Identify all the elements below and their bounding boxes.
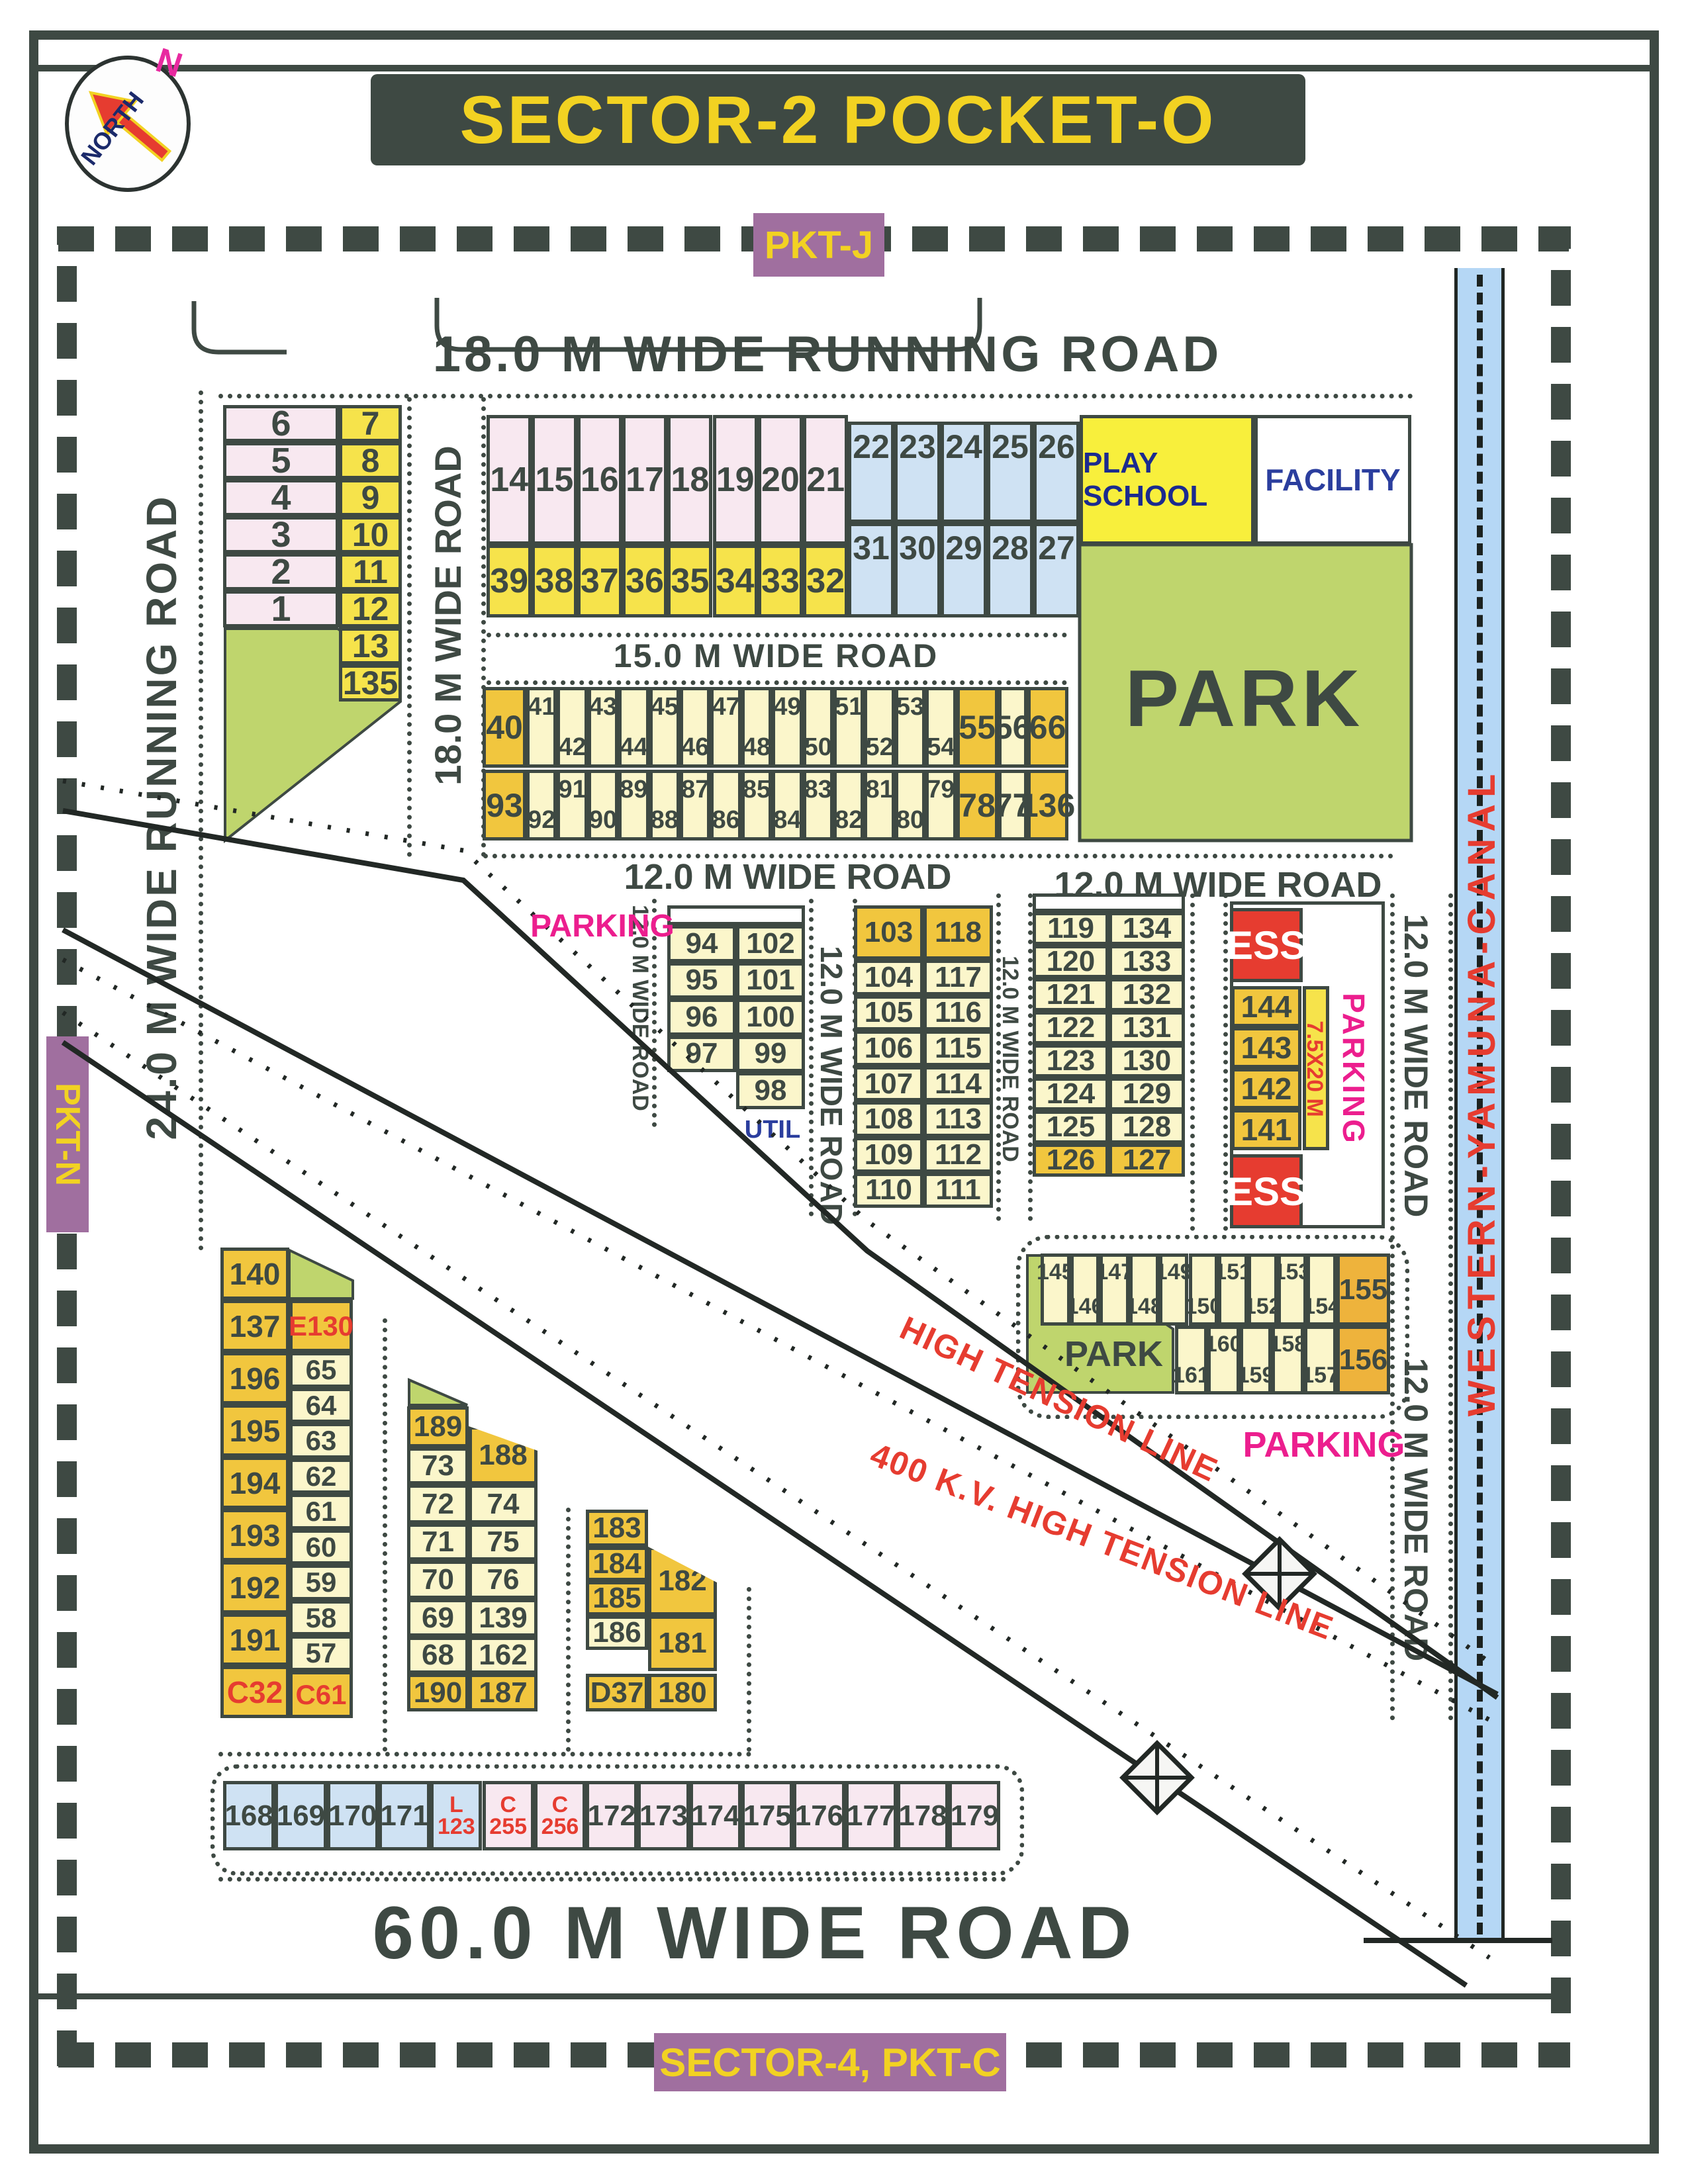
- plot-29: 29: [941, 523, 987, 617]
- plot-131: 131: [1109, 1011, 1185, 1044]
- plot-65: 65: [289, 1352, 353, 1388]
- plot-88: 88: [649, 770, 680, 841]
- plot-156: 156: [1336, 1326, 1390, 1394]
- plot-132: 132: [1109, 978, 1185, 1011]
- plot-168: 168: [223, 1781, 275, 1850]
- plot-143: 143: [1231, 1027, 1301, 1068]
- plot-41: 41: [526, 687, 557, 768]
- sector-plan-page: SECTOR-2 POCKET-O NORTH N PKT-J PKT-N SE…: [0, 0, 1688, 2184]
- plot-139: 139: [469, 1599, 538, 1637]
- plot-23: 23: [894, 422, 941, 523]
- plot-72: 72: [407, 1484, 469, 1524]
- plot-82: 82: [833, 770, 864, 841]
- plot-5: 5: [223, 442, 339, 479]
- plot-85: 85: [741, 770, 772, 841]
- tag-sector4: SECTOR-4, PKT-C: [654, 2033, 1006, 2091]
- plot-43: 43: [588, 687, 618, 768]
- plot-37: 37: [577, 545, 622, 617]
- area-facility: FACILITY: [1254, 415, 1411, 545]
- ess-bottom: ESS: [1230, 1154, 1303, 1228]
- plot-106: 106: [854, 1030, 923, 1066]
- plot-45: 45: [649, 687, 680, 768]
- plot-label: L: [449, 1794, 463, 1815]
- plot-36: 36: [622, 545, 667, 617]
- plot-115: 115: [923, 1030, 993, 1066]
- plot-188: 188: [469, 1426, 538, 1484]
- plot-180: 180: [648, 1674, 717, 1711]
- plot-28: 28: [987, 523, 1033, 617]
- plot-101: 101: [736, 962, 805, 999]
- plot-35: 35: [667, 545, 712, 617]
- plot-194: 194: [220, 1457, 289, 1509]
- plot-128: 128: [1109, 1111, 1185, 1144]
- plot-d37: D37: [586, 1674, 648, 1711]
- ess-dim-label: 7.5X20 M: [1305, 986, 1327, 1152]
- plot-137: 137: [220, 1300, 289, 1352]
- plot-107: 107: [854, 1066, 923, 1102]
- plot-177: 177: [845, 1781, 897, 1850]
- plot-191: 191: [220, 1614, 289, 1666]
- plot-130: 130: [1109, 1044, 1185, 1077]
- plot-195: 195: [220, 1404, 289, 1457]
- plot-38: 38: [532, 545, 577, 617]
- plot-189: 189: [407, 1406, 469, 1447]
- plot-54: 54: [925, 687, 956, 768]
- plot-3: 3: [223, 516, 339, 553]
- plot-c255: C255: [483, 1781, 534, 1850]
- plot-102: 102: [736, 925, 805, 962]
- plot-32: 32: [803, 545, 848, 617]
- plot-144: 144: [1231, 986, 1301, 1027]
- plot-183: 183: [586, 1510, 648, 1547]
- plot-103: 103: [854, 905, 923, 960]
- plot-129: 129: [1109, 1077, 1185, 1111]
- plot-154: 154: [1307, 1253, 1336, 1326]
- plot-42: 42: [557, 687, 587, 768]
- plot-185: 185: [586, 1581, 648, 1615]
- plot-74: 74: [469, 1484, 538, 1524]
- plot-161: 161: [1175, 1326, 1207, 1394]
- plot-53: 53: [895, 687, 925, 768]
- plot-110: 110: [854, 1173, 923, 1208]
- plot-63: 63: [289, 1423, 353, 1459]
- plot-136: 136: [1027, 770, 1068, 841]
- plot-l123: L123: [430, 1781, 482, 1850]
- plot-79: 79: [925, 770, 956, 841]
- plot-34: 34: [713, 545, 758, 617]
- plot-62: 62: [289, 1459, 353, 1494]
- plot-96: 96: [667, 999, 736, 1036]
- plot-12: 12: [339, 590, 402, 627]
- plot-93: 93: [483, 770, 526, 841]
- plot-18: 18: [667, 415, 712, 545]
- plot-135: 135: [339, 664, 402, 702]
- plot-119: 119: [1033, 912, 1109, 945]
- plot-68: 68: [407, 1637, 469, 1674]
- plot-192: 192: [220, 1561, 289, 1614]
- plot-7: 7: [339, 405, 402, 442]
- ess-top: ESS: [1230, 908, 1303, 982]
- plot-95: 95: [667, 962, 736, 999]
- plot-14: 14: [487, 415, 532, 545]
- plot-81: 81: [864, 770, 894, 841]
- plot-196: 196: [220, 1352, 289, 1404]
- plot-49: 49: [772, 687, 802, 768]
- plot-109: 109: [854, 1137, 923, 1173]
- plot-label: 255: [489, 1816, 527, 1837]
- plot-61: 61: [289, 1494, 353, 1529]
- plot-125: 125: [1033, 1111, 1109, 1144]
- plot-11: 11: [339, 553, 402, 590]
- plot-155: 155: [1336, 1253, 1390, 1326]
- plot-90: 90: [588, 770, 618, 841]
- plot-157: 157: [1304, 1326, 1336, 1394]
- plot-16: 16: [577, 415, 622, 545]
- plot-50: 50: [803, 687, 833, 768]
- plot-169: 169: [275, 1781, 326, 1850]
- plot-30: 30: [894, 523, 941, 617]
- svg-text:N: N: [152, 41, 187, 85]
- plot-114: 114: [923, 1066, 993, 1102]
- plot-120: 120: [1033, 945, 1109, 978]
- plot-c32: C32: [220, 1666, 289, 1718]
- plot-159: 159: [1240, 1326, 1272, 1394]
- plot-181: 181: [648, 1615, 717, 1671]
- plot-91: 91: [557, 770, 587, 841]
- plot-55: 55: [957, 687, 998, 768]
- plot-10: 10: [339, 516, 402, 553]
- plot-17: 17: [622, 415, 667, 545]
- plot-80: 80: [895, 770, 925, 841]
- plot-121: 121: [1033, 978, 1109, 1011]
- plot-70: 70: [407, 1561, 469, 1599]
- plot-c256: C256: [534, 1781, 586, 1850]
- plot-20: 20: [758, 415, 803, 545]
- plot-133: 133: [1109, 945, 1185, 978]
- plot-31: 31: [848, 523, 894, 617]
- plot-76: 76: [469, 1561, 538, 1599]
- plot-118: 118: [923, 905, 993, 960]
- area-play-school: PLAY SCHOOL: [1080, 415, 1254, 545]
- plot-187: 187: [469, 1674, 538, 1711]
- plot-171: 171: [379, 1781, 430, 1850]
- plot-label: 256: [541, 1816, 579, 1837]
- plot-112: 112: [923, 1137, 993, 1173]
- plot-75: 75: [469, 1524, 538, 1561]
- plot-117: 117: [923, 960, 993, 995]
- plot-116: 116: [923, 995, 993, 1031]
- plot-39: 39: [487, 545, 532, 617]
- north-arrow: NORTH N: [58, 41, 211, 200]
- plot-64: 64: [289, 1388, 353, 1423]
- plot-182: 182: [648, 1547, 717, 1615]
- plot-25: 25: [987, 422, 1033, 523]
- plot-127: 127: [1109, 1144, 1185, 1177]
- sector4-label: SECTOR-4, PKT-C: [659, 2040, 1001, 2085]
- plot-100: 100: [736, 999, 805, 1036]
- plot-71: 71: [407, 1524, 469, 1561]
- plot-122: 122: [1033, 1011, 1109, 1044]
- plot-2: 2: [223, 553, 339, 590]
- plot-73: 73: [407, 1447, 469, 1484]
- plot-105: 105: [854, 995, 923, 1031]
- plot-13: 13: [339, 627, 402, 664]
- plot-40: 40: [483, 687, 526, 768]
- plot-69: 69: [407, 1599, 469, 1637]
- plot-190: 190: [407, 1674, 469, 1711]
- plot-4: 4: [223, 479, 339, 516]
- plot-84: 84: [772, 770, 802, 841]
- plot-48: 48: [741, 687, 772, 768]
- plot-58: 58: [289, 1600, 353, 1635]
- parking-label-1: PARKING: [493, 908, 712, 944]
- plot-89: 89: [618, 770, 649, 841]
- plot-57: 57: [289, 1635, 353, 1671]
- plot-97: 97: [667, 1036, 736, 1073]
- plot-21: 21: [803, 415, 848, 545]
- plot-blocks: 6543217891011121313514151617181920213938…: [0, 0, 1688, 2184]
- plot-78: 78: [957, 770, 998, 841]
- plot-label: C: [500, 1794, 516, 1815]
- plot-label: C: [552, 1794, 569, 1815]
- plot-179: 179: [949, 1781, 1000, 1850]
- plot-6: 6: [223, 405, 339, 442]
- plot-1: 1: [223, 590, 339, 627]
- plot-141: 141: [1231, 1109, 1301, 1150]
- plot-26: 26: [1033, 422, 1080, 523]
- plot-170: 170: [327, 1781, 379, 1850]
- plot-47: 47: [710, 687, 741, 768]
- plot-label: 123: [438, 1816, 475, 1837]
- plot-126: 126: [1033, 1144, 1109, 1177]
- plot-140: 140: [220, 1248, 289, 1300]
- plot-19: 19: [713, 415, 758, 545]
- plot-99: 99: [736, 1036, 805, 1073]
- plot-92: 92: [526, 770, 557, 841]
- plot-172: 172: [586, 1781, 637, 1850]
- plot-193: 193: [220, 1509, 289, 1561]
- plot-15: 15: [532, 415, 577, 545]
- plot-104: 104: [854, 960, 923, 995]
- plot-87: 87: [680, 770, 710, 841]
- plot-108: 108: [854, 1101, 923, 1137]
- plot-60: 60: [289, 1529, 353, 1565]
- plot-83: 83: [803, 770, 833, 841]
- plot-22: 22: [848, 422, 894, 523]
- parking-label-2: PARKING: [1225, 1424, 1423, 1465]
- ess-parking-label: PARKING: [1341, 970, 1372, 1168]
- plot-111: 111: [923, 1173, 993, 1208]
- plot-124: 124: [1033, 1077, 1109, 1111]
- plot-98: 98: [736, 1072, 805, 1109]
- plot-162: 162: [469, 1637, 538, 1674]
- plot-142: 142: [1231, 1068, 1301, 1109]
- plot-8: 8: [339, 442, 402, 479]
- plot-44: 44: [618, 687, 649, 768]
- plot-160: 160: [1207, 1326, 1240, 1394]
- plot-174: 174: [690, 1781, 741, 1850]
- b119-header: [1033, 893, 1185, 912]
- plot-86: 86: [710, 770, 741, 841]
- plot-175: 175: [741, 1781, 793, 1850]
- plot-59: 59: [289, 1565, 353, 1600]
- plot-9: 9: [339, 479, 402, 516]
- plot-184: 184: [586, 1547, 648, 1581]
- plot-173: 173: [637, 1781, 689, 1850]
- plot-66: 66: [1027, 687, 1068, 768]
- plot-176: 176: [793, 1781, 845, 1850]
- plot-134: 134: [1109, 912, 1185, 945]
- plot-33: 33: [758, 545, 803, 617]
- plot-186: 186: [586, 1615, 648, 1650]
- plot-56: 56: [998, 687, 1027, 768]
- plot-158: 158: [1272, 1326, 1304, 1394]
- plot-e130: E130: [289, 1300, 353, 1352]
- plot-123: 123: [1033, 1044, 1109, 1077]
- plot-51: 51: [833, 687, 864, 768]
- plot-113: 113: [923, 1101, 993, 1137]
- plot-52: 52: [864, 687, 894, 768]
- plot-c61: C61: [289, 1671, 353, 1718]
- plot-46: 46: [680, 687, 710, 768]
- plot-27: 27: [1033, 523, 1080, 617]
- plot-24: 24: [941, 422, 987, 523]
- plot-178: 178: [897, 1781, 949, 1850]
